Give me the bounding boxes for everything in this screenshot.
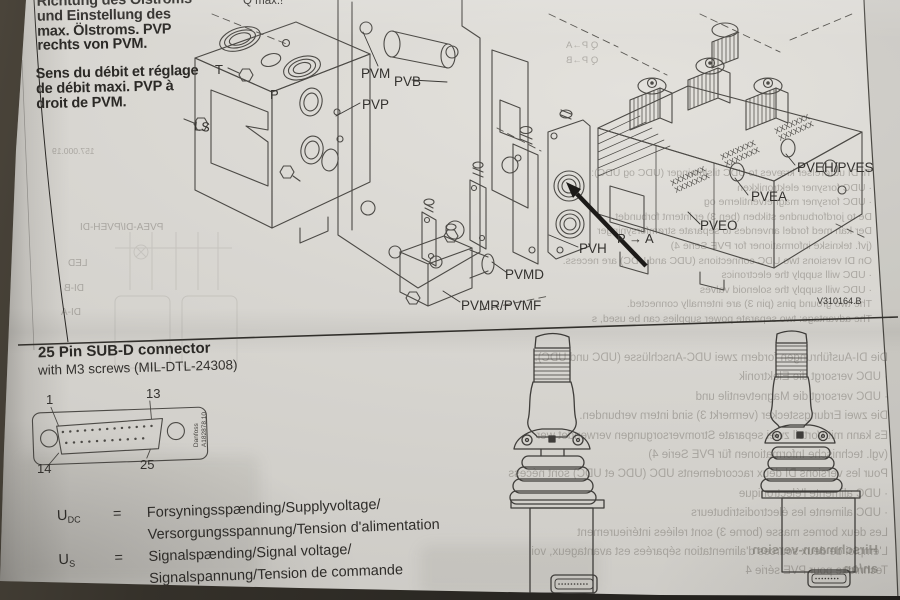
label-pvmd: PVMD [505,267,544,282]
label-pvp: PVP [362,97,389,112]
label-drawing-code: V310164.B [817,296,862,306]
port-label-p: P [270,87,279,102]
pin-label-13: 13 [146,386,160,401]
voltage-symbol: UDC [57,503,111,549]
document-photo: 157.000.19 Q P→AQ P→B PVEA-DI/PVEH-DI LE… [0,0,900,600]
equals-sign: = [114,546,146,591]
valve-pvp-block [184,22,370,243]
pin-label-25: 25 [140,457,154,472]
label-pvh: PVH [579,241,607,256]
port-label-ls: LS [193,118,210,135]
joystick-left-drawing [510,334,604,594]
label-flow-p-to-a: P → A [617,231,654,246]
page-edge-left [34,0,68,342]
joystick-right-drawing [761,331,860,587]
paper-page: 157.000.19 Q P→AQ P→B PVEA-DI/PVEH-DI LE… [0,0,900,600]
label-pvm: PVM [361,66,390,81]
connector-side-label-brand: Danfoss [193,412,200,447]
valve-pvb-plate [338,0,528,288]
label-pvb: PVB [394,74,421,89]
label-pveh-pves: PVEH/PVES [797,160,874,175]
equals-sign: = [113,502,145,547]
dashed-alignment-lines [212,14,868,310]
connector-side-label-number: A182878.10 [201,412,208,447]
label-pvea: PVEA [751,189,787,204]
connector-side-label: Danfoss A182878.10 [193,412,208,447]
voltage-symbol: US [58,547,112,593]
pin-label-14: 14 [37,461,51,476]
pin-label-1: 1 [46,392,53,407]
label-pveo: PVEO [700,218,738,233]
page-crease-left [22,60,34,350]
voltage-definitions: UDC = Forsyningsspænding/Supplyvoltage/V… [57,491,470,593]
port-label-t: T [215,62,223,77]
subd-connector-drawing [32,399,208,465]
label-pvmr-pvmf: PVMR/PVMF [461,298,541,313]
